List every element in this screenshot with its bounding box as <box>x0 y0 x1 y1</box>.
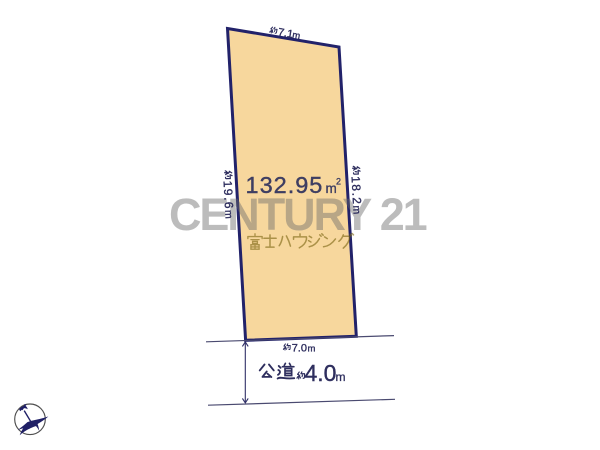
svg-text:m: m <box>350 205 362 215</box>
svg-text:m: m <box>222 210 234 220</box>
svg-text:2: 2 <box>336 177 341 187</box>
svg-text:18.2: 18.2 <box>349 176 365 206</box>
svg-text:m: m <box>308 344 316 355</box>
svg-text:m: m <box>336 370 346 384</box>
svg-text:7.0: 7.0 <box>292 343 307 355</box>
svg-text:132.95: 132.95 <box>246 172 324 198</box>
svg-text:4.0: 4.0 <box>305 360 337 386</box>
svg-text:19.6: 19.6 <box>221 180 237 210</box>
